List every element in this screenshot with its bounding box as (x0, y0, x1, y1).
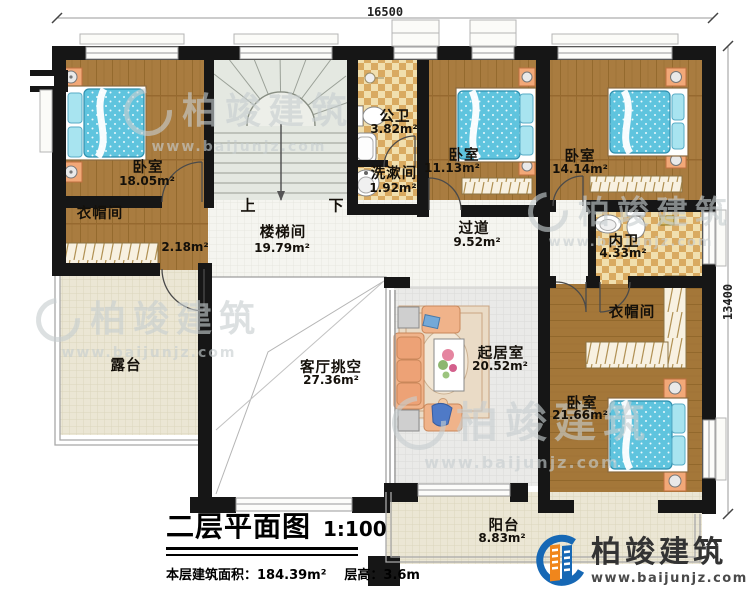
stairs-down-label: 下 (328, 199, 343, 214)
room-label-washroom: 洗漱间 (371, 167, 418, 182)
room-area-bedroom-tm: 11.13m² (424, 162, 480, 174)
brand-company-name: 柏竣建筑 (591, 538, 748, 568)
room-area-living-void: 27.36m² (303, 374, 359, 386)
room-area-corridor: 9.52m² (453, 236, 500, 248)
floor-plan-canvas: 柏竣建筑 www.baijunjz.com 柏竣建筑 www.baijunjz.… (0, 0, 750, 602)
room-area-bedroom-br: 21.66m² (552, 409, 608, 421)
room-area-cloakroom-left: 2.18m² (161, 241, 208, 253)
brand-logo-icon (534, 531, 584, 593)
room-area-master-bath: 4.33m² (599, 247, 646, 259)
brand-logo: 柏竣建筑 www.baijunjz.com (534, 531, 748, 593)
room-area-sitting-room: 20.52m² (472, 360, 528, 372)
plan-title: 二层平面图 (166, 505, 311, 545)
room-area-public-bath: 3.82m² (370, 123, 417, 135)
room-area-bedroom-tr: 14.14m² (552, 163, 608, 175)
stairs-up-label: 上 (240, 199, 255, 214)
room-area-balcony: 8.83m² (478, 532, 525, 544)
title-underline (166, 547, 358, 556)
living-void-area (210, 277, 386, 500)
plan-area-info: 本层建筑面积：184.39m² (166, 564, 326, 583)
room-label-cloakroom-right: 衣帽间 (609, 306, 656, 321)
plan-height-info: 层高：3.6m (344, 564, 420, 583)
dimension-top: 16500 (367, 6, 403, 18)
bench-top-middle (462, 178, 532, 194)
dimension-right: 13400 (722, 284, 734, 320)
room-area-stairwell: 19.79m² (254, 242, 310, 254)
closet-right-horizontal (586, 342, 668, 368)
brand-website: www.baijunjz.com (591, 571, 748, 586)
room-area-washroom: 1.92m² (369, 182, 416, 194)
plan-scale: 1:100 (323, 517, 387, 541)
room-label-cloakroom-left: 衣帽间 (77, 207, 124, 222)
closet-top-right (590, 176, 682, 192)
title-block: 二层平面图 1:100 本层建筑面积：184.39m² 层高：3.6m (166, 505, 420, 583)
room-area-bedroom-tl: 18.05m² (119, 175, 175, 187)
room-label-terrace: 露台 (111, 359, 142, 374)
room-label-stairwell: 楼梯间 (260, 226, 307, 241)
